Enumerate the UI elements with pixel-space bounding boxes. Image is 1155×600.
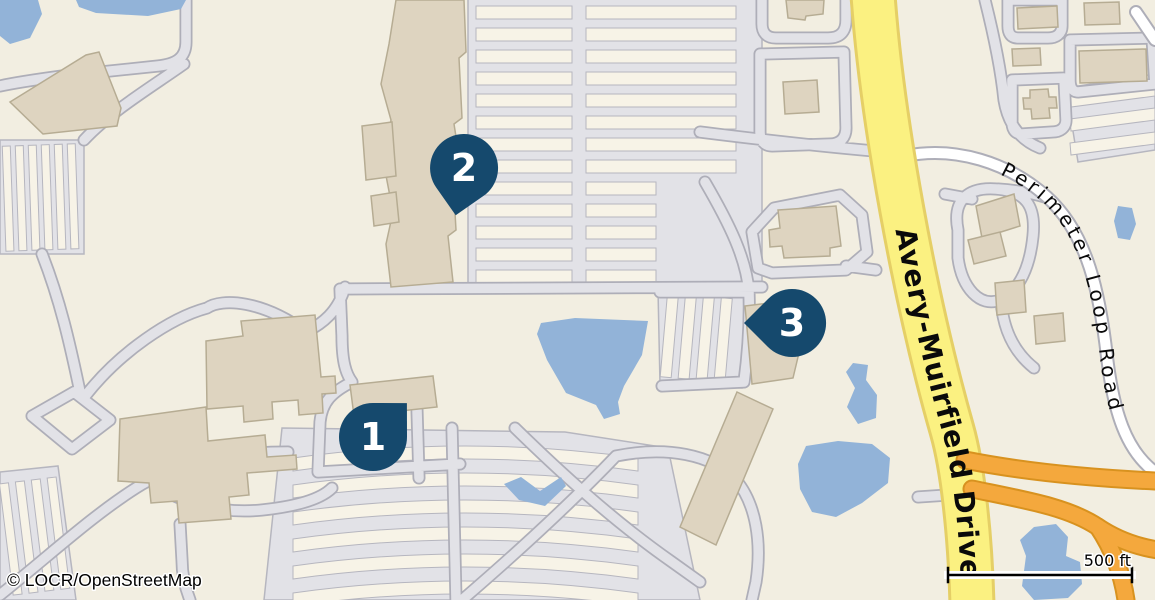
- building: [1034, 313, 1065, 344]
- attribution: © LOCR/OpenStreetMap: [7, 570, 202, 590]
- marker-3-number: 3: [779, 301, 805, 345]
- building: [362, 122, 396, 180]
- marker-1[interactable]: 1: [339, 403, 407, 471]
- building: [995, 280, 1026, 315]
- map-container[interactable]: Avery-Muirfield Drive Perimeter Loop Roa…: [0, 0, 1155, 600]
- building: [1084, 2, 1120, 25]
- map-canvas[interactable]: Avery-Muirfield Drive Perimeter Loop Roa…: [0, 0, 1155, 600]
- attribution-text: © LOCR/OpenStreetMap: [7, 570, 202, 590]
- building: [371, 192, 399, 226]
- scale-label: 500 ft: [1084, 551, 1131, 570]
- building: [1012, 48, 1041, 66]
- building: [783, 80, 819, 114]
- marker-1-number: 1: [360, 415, 386, 459]
- marker-2-number: 2: [451, 146, 477, 190]
- building: [1079, 49, 1147, 83]
- building: [1017, 6, 1058, 29]
